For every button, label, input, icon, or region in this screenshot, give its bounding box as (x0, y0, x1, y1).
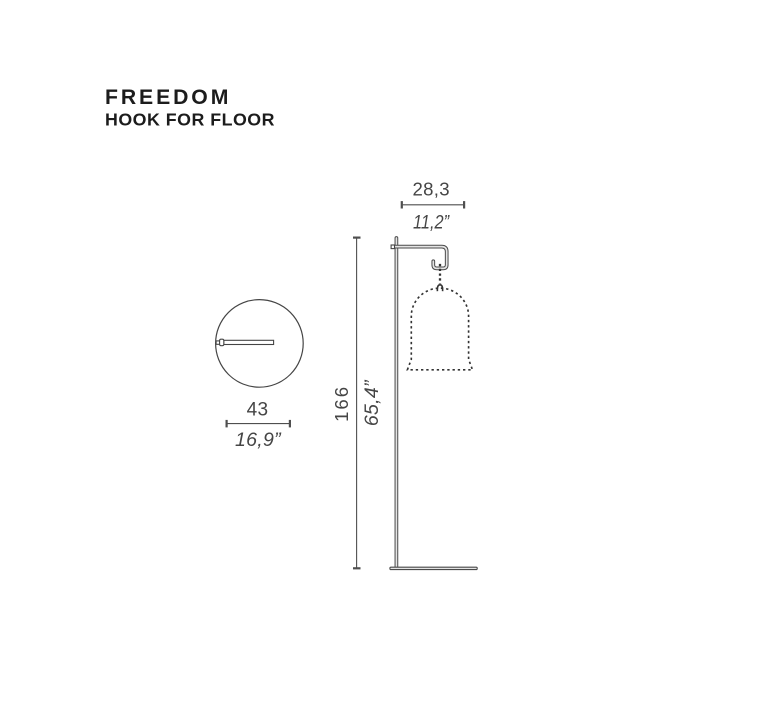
svg-text:166: 166 (331, 385, 352, 422)
svg-text:65,4”: 65,4” (361, 379, 383, 426)
svg-text:FREEDOM: FREEDOM (105, 86, 231, 109)
svg-text:28,3: 28,3 (413, 178, 450, 199)
svg-text:16,9”: 16,9” (235, 429, 282, 451)
svg-text:43: 43 (247, 399, 269, 420)
svg-text:HOOK FOR FLOOR: HOOK FOR FLOOR (105, 110, 275, 130)
svg-text:11,2”: 11,2” (413, 212, 450, 234)
